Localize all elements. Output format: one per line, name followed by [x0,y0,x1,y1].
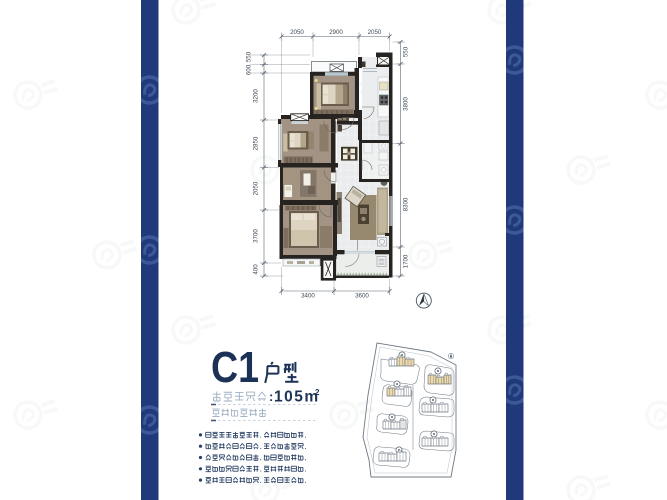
svg-text:1700: 1700 [403,254,410,268]
svg-text:3700: 3700 [253,229,260,243]
svg-text:2050: 2050 [253,181,260,195]
svg-text:2050: 2050 [368,29,382,36]
svg-text:8300: 8300 [403,197,410,211]
svg-text:3200: 3200 [253,89,260,103]
svg-text:2050: 2050 [290,29,304,36]
svg-text:2: 2 [315,388,320,397]
svg-text:3600: 3600 [355,293,369,300]
svg-text:2900: 2900 [329,29,343,36]
svg-text:3400: 3400 [301,293,315,300]
svg-text:600: 600 [246,64,253,75]
svg-text:105m: 105m [274,389,320,406]
svg-text:550: 550 [246,51,253,62]
svg-text:3800: 3800 [403,97,410,111]
svg-text:2850: 2850 [253,136,260,150]
svg-text:550: 550 [403,46,410,57]
svg-text::: : [269,389,273,404]
svg-text:400: 400 [253,264,260,275]
svg-text:C1: C1 [211,343,259,392]
